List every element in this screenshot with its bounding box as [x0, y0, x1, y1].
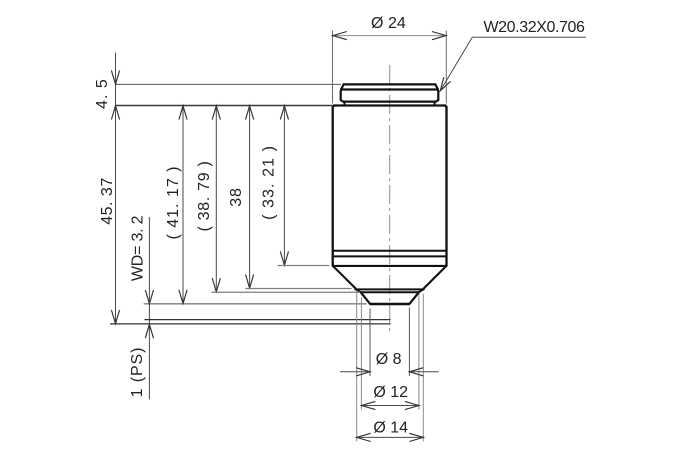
svg-text:Ø 12: Ø 12 [373, 384, 408, 401]
svg-text:Ø 8: Ø 8 [376, 351, 402, 368]
svg-text:WD= 3. 2: WD= 3. 2 [129, 215, 146, 281]
svg-text:( 38. 79 ): ( 38. 79 ) [196, 160, 213, 231]
svg-text:( 41. 17 ): ( 41. 17 ) [165, 165, 182, 239]
svg-text:W20.32X0.706: W20.32X0.706 [483, 19, 585, 36]
svg-text:Ø 14: Ø 14 [373, 419, 408, 436]
svg-text:Ø 24: Ø 24 [371, 15, 406, 32]
svg-text:4. 5: 4. 5 [94, 78, 111, 109]
svg-text:45. 37: 45. 37 [99, 177, 116, 224]
svg-text:38: 38 [228, 187, 245, 206]
svg-text:( 33. 21 ): ( 33. 21 ) [261, 145, 278, 220]
svg-text:1 (PS): 1 (PS) [129, 347, 146, 398]
